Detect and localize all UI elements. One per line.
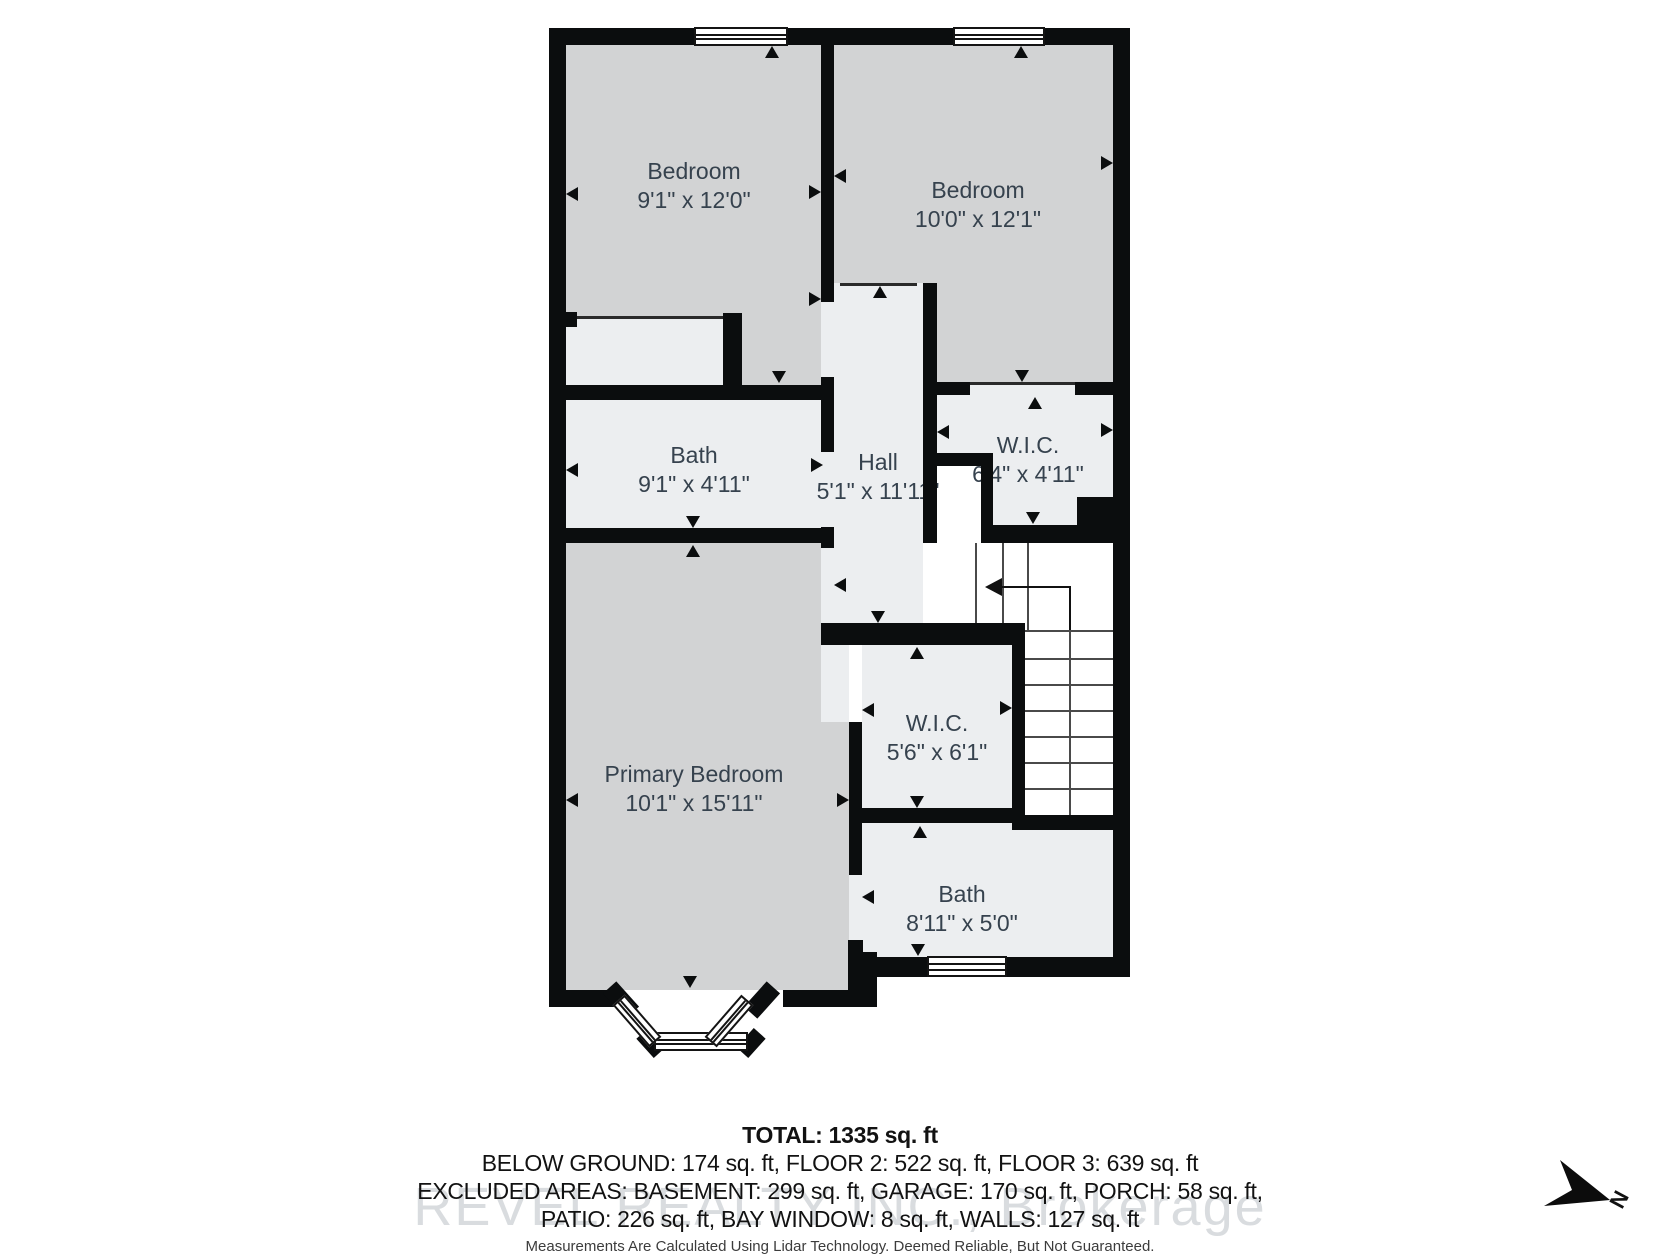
- tick-arrow: [1014, 46, 1028, 58]
- tick-arrow: [686, 516, 700, 528]
- compass: N: [1510, 1130, 1660, 1230]
- primary-wic-door-opening: [821, 645, 849, 722]
- bath-2-door-opening: [849, 875, 862, 940]
- wall-wic-2-bottom: [849, 808, 1013, 823]
- room-dims: 10'1" x 15'11": [605, 789, 784, 818]
- door-arrow: [862, 703, 874, 717]
- tick-arrow: [913, 826, 927, 838]
- wall-bedroom-divider: [821, 45, 834, 302]
- window-bedroom-1: [694, 27, 788, 46]
- excluded-areas-text-2: PATIO: 226 sq. ft, BAY WINDOW: 8 sq. ft,…: [0, 1206, 1680, 1233]
- compass-north-arrow: [1544, 1160, 1610, 1206]
- wall-hall-left-upper: [821, 377, 834, 452]
- room-dims: 9'1" x 4'11": [638, 470, 750, 499]
- door-arrow: [910, 647, 924, 659]
- room-label-bedroom-1: Bedroom 9'1" x 12'0": [637, 157, 750, 215]
- wall-bath-2-bottom-right: [1007, 957, 1130, 977]
- wall-stairs-left: [1012, 630, 1025, 830]
- stair-landing-line: [975, 543, 977, 625]
- door-arrow: [834, 578, 846, 592]
- room-name: Primary Bedroom: [605, 760, 784, 789]
- wall-hall-bottom: [821, 623, 1025, 645]
- tick-arrow: [911, 944, 925, 956]
- tick-arrow: [765, 46, 779, 58]
- tick-arrow: [1101, 156, 1113, 170]
- door-arrow: [811, 458, 823, 472]
- tick-arrow: [686, 545, 700, 557]
- wall-right: [1113, 28, 1130, 960]
- room-label-wic-2: W.I.C. 5'6" x 6'1": [887, 709, 988, 767]
- disclaimer-text: Measurements Are Calculated Using Lidar …: [0, 1238, 1680, 1255]
- tick-arrow: [809, 185, 821, 199]
- door-arrow: [862, 890, 874, 904]
- wall-bedroom-2-bottom-left: [937, 382, 970, 395]
- wall-closet-post: [723, 313, 742, 387]
- stair-direction-arrow: [985, 578, 1002, 596]
- wall-bath-1-top: [566, 385, 821, 400]
- room-label-primary-bedroom: Primary Bedroom 10'1" x 15'11": [605, 760, 784, 818]
- door-arrow: [1015, 370, 1029, 382]
- door-arrow: [1028, 397, 1042, 409]
- tick-arrow: [683, 976, 697, 988]
- wall-hall-left-mid: [821, 527, 834, 548]
- room-dims: 5'6" x 6'1": [887, 738, 988, 767]
- total-area-text: TOTAL: 1335 sq. ft: [0, 1122, 1680, 1149]
- wall-stairs-bottom: [1012, 815, 1113, 830]
- door-arrow: [809, 292, 821, 306]
- tick-arrow: [566, 793, 578, 807]
- tick-arrow: [871, 611, 885, 623]
- tick-arrow: [566, 187, 578, 201]
- room-name: Bedroom: [915, 176, 1041, 205]
- wall-primary-bottom-right: [783, 990, 877, 1007]
- room-label-hall: Hall 5'1" x 11'11": [817, 448, 940, 506]
- tick-arrow: [566, 463, 578, 477]
- tick-arrow: [837, 793, 849, 807]
- wall-left: [549, 28, 566, 1007]
- wic-1-door-line: [970, 382, 1075, 385]
- room-name: Hall: [817, 448, 940, 477]
- door-arrow: [937, 425, 949, 439]
- window-bedroom-2: [953, 27, 1045, 46]
- room-dims: 8'11" x 5'0": [906, 909, 1018, 938]
- tick-arrow: [910, 796, 924, 808]
- floor-areas-text: BELOW GROUND: 174 sq. ft, FLOOR 2: 522 s…: [0, 1150, 1680, 1177]
- bedroom-1-door-opening: [821, 302, 834, 377]
- room-name: Bath: [638, 441, 750, 470]
- tick-arrow: [1026, 512, 1040, 524]
- window-bay-center: [654, 1032, 748, 1051]
- door-arrow: [1000, 701, 1012, 715]
- door-arrow: [772, 371, 786, 383]
- room-dims: 9'1" x 12'0": [637, 186, 750, 215]
- tick-arrow: [834, 169, 846, 183]
- closet-front-line: [566, 316, 723, 319]
- stair-landing-line: [1002, 543, 1004, 625]
- wall-bath-2-bottom-left: [862, 957, 927, 977]
- wall-bath-1-bottom: [566, 528, 821, 543]
- room-name: W.I.C.: [887, 709, 988, 738]
- room-name: Bath: [906, 880, 1018, 909]
- wall-wic-2-left: [849, 722, 862, 875]
- wall-closet-stub: [560, 312, 577, 327]
- stair-direction-line: [1069, 586, 1071, 630]
- wall-landing-top: [985, 530, 1113, 543]
- bedroom-1-closet-floor: [566, 318, 723, 385]
- wall-wic-1-stub: [923, 382, 937, 402]
- tick-arrow: [1101, 423, 1113, 437]
- compass-n-label: N: [1604, 1187, 1634, 1213]
- excluded-areas-text-1: EXCLUDED AREAS: BASEMENT: 299 sq. ft, GA…: [0, 1178, 1680, 1205]
- primary-door-opening: [821, 548, 834, 623]
- room-name: Bedroom: [637, 157, 750, 186]
- room-dims: 5'1" x 11'11": [817, 477, 940, 506]
- room-label-bedroom-2: Bedroom 10'0" x 12'1": [915, 176, 1041, 234]
- floor-plan-canvas: Bedroom 9'1" x 12'0" Bedroom 10'0" x 12'…: [0, 0, 1680, 1260]
- wall-bedroom-2-bottom-right: [1075, 382, 1113, 395]
- room-dims: 10'0" x 12'1": [915, 205, 1041, 234]
- stair-direction-line: [990, 586, 1070, 588]
- window-bath-2: [927, 956, 1007, 977]
- door-arrow: [873, 286, 887, 298]
- room-label-bath-2: Bath 8'11" x 5'0": [906, 880, 1018, 938]
- stair-divider-line: [1069, 630, 1071, 815]
- room-label-bath-1: Bath 9'1" x 4'11": [638, 441, 750, 499]
